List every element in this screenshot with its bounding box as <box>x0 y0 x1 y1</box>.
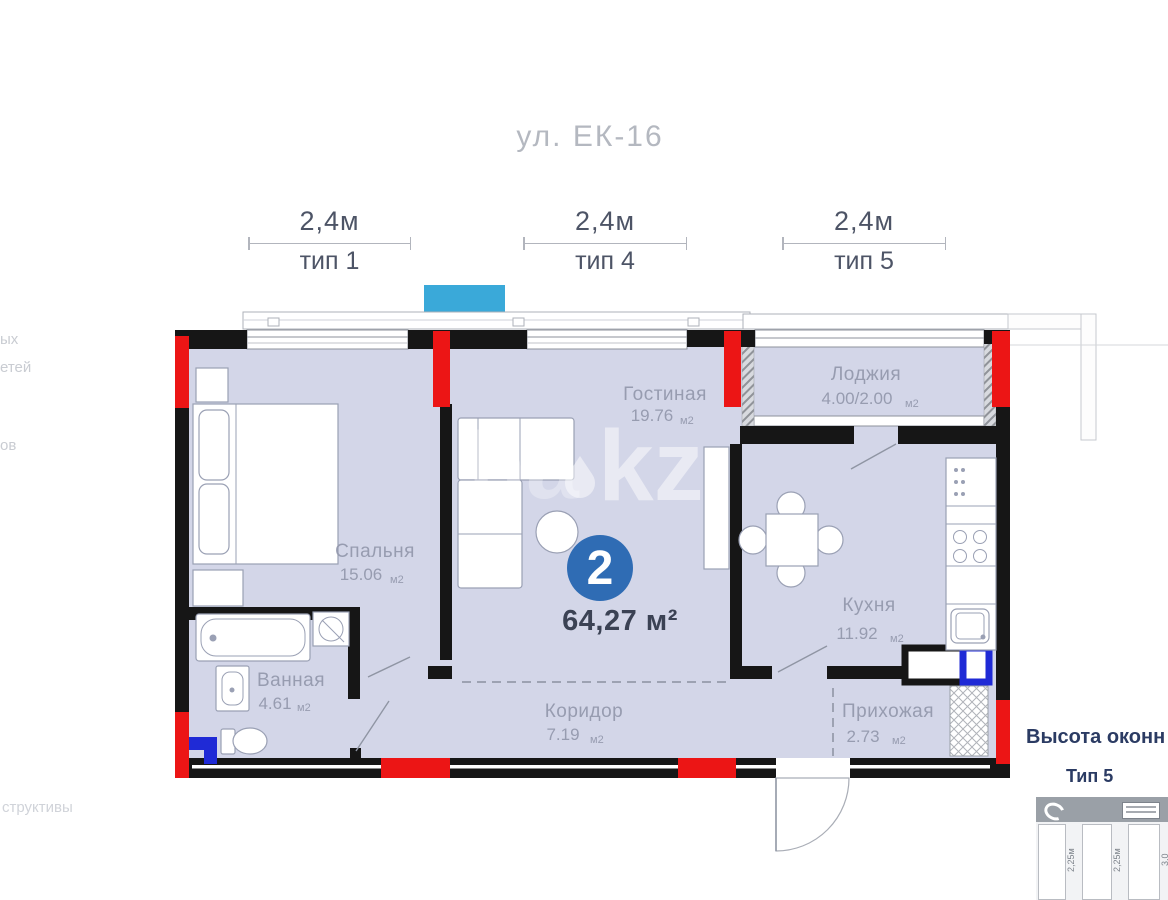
pane-height-label: 3,0 <box>1160 824 1168 900</box>
total-area: 64,27 м² <box>562 605 678 637</box>
room-unit-bathroom: м2 <box>297 702 311 714</box>
window-type-label: Тип 5 <box>1066 766 1168 787</box>
left-text-fragment: ов <box>0 437 16 454</box>
room-unit-kitchen: м2 <box>890 633 904 645</box>
dimension-length: 2,4м <box>248 206 411 237</box>
left-text-fragment: ых <box>0 331 18 348</box>
pane-height-label: 2,25м <box>1066 824 1080 900</box>
dimension-group-2: 2,4м тип 4 <box>523 206 687 278</box>
entry-door-arc <box>776 778 849 851</box>
room-unit-bedroom: м2 <box>390 574 404 586</box>
room-area-kitchen: 11.92 <box>836 624 877 643</box>
closet-hatch <box>950 686 988 756</box>
dimension-length: 2,4м <box>523 206 687 237</box>
pane-height-label: 2,25м <box>1112 824 1126 900</box>
room-label-loggia: Лоджия <box>831 364 901 385</box>
brand-logo-icon <box>1041 799 1067 823</box>
diagram-legend-box <box>1122 802 1160 819</box>
dimension-line <box>782 243 946 244</box>
room-area-corridor: 7.19 <box>546 725 579 744</box>
room-label-kitchen: Кухня <box>842 595 895 616</box>
floor-plan: ha kz Гостиная 19.76 м2 Лоджия 4.00/2.00… <box>160 278 1168 900</box>
room-label-bedroom: Спальня <box>335 541 415 562</box>
floorplan-page: ул. ЕК-16 2,4м тип 1 2,4м тип 4 2,4м тип… <box>0 0 1168 900</box>
room-label-corridor: Коридор <box>545 701 624 722</box>
window-pane <box>1038 824 1066 900</box>
window-pane <box>1128 824 1160 900</box>
left-text-fragment: етей <box>0 359 31 376</box>
vent-shaft <box>905 648 989 682</box>
dimension-line <box>523 243 687 244</box>
room-unit-loggia: м2 <box>905 398 919 410</box>
dimension-length: 2,4м <box>782 206 946 237</box>
room-area-living: 19.76 <box>631 406 674 425</box>
room-count: 2 <box>587 542 614 595</box>
room-unit-hallway: м2 <box>892 735 906 747</box>
room-area-loggia: 4.00/2.00 <box>822 389 893 408</box>
room-label-bathroom: Ванная <box>257 670 325 691</box>
dimension-group-1: 2,4м тип 1 <box>248 206 411 278</box>
diagram-header <box>1036 797 1168 822</box>
room-label-living: Гостиная <box>623 384 707 405</box>
watermark-partial: ha <box>468 413 580 519</box>
room-label-hallway: Прихожая <box>842 701 934 722</box>
dimension-group-3: 2,4м тип 5 <box>782 206 946 278</box>
window-pane <box>1082 824 1112 900</box>
room-area-hallway: 2.73 <box>846 727 879 746</box>
page-title: ул. ЕК-16 <box>400 120 780 154</box>
room-unit-living: м2 <box>680 415 694 427</box>
room-unit-corridor: м2 <box>590 734 604 746</box>
room-area-bathroom: 4.61 <box>258 694 291 713</box>
dimension-line <box>248 243 411 244</box>
dimension-type: тип 4 <box>523 247 687 276</box>
dimension-type: тип 1 <box>248 247 411 276</box>
window-height-diagram: 2,25м 2,25м 3,0 <box>1036 797 1168 900</box>
window-heights-title: Высота оконн <box>1026 726 1168 749</box>
left-text-fragment: структивы <box>2 799 73 816</box>
room-area-bedroom: 15.06 <box>340 565 383 584</box>
dimension-type: тип 5 <box>782 247 946 276</box>
